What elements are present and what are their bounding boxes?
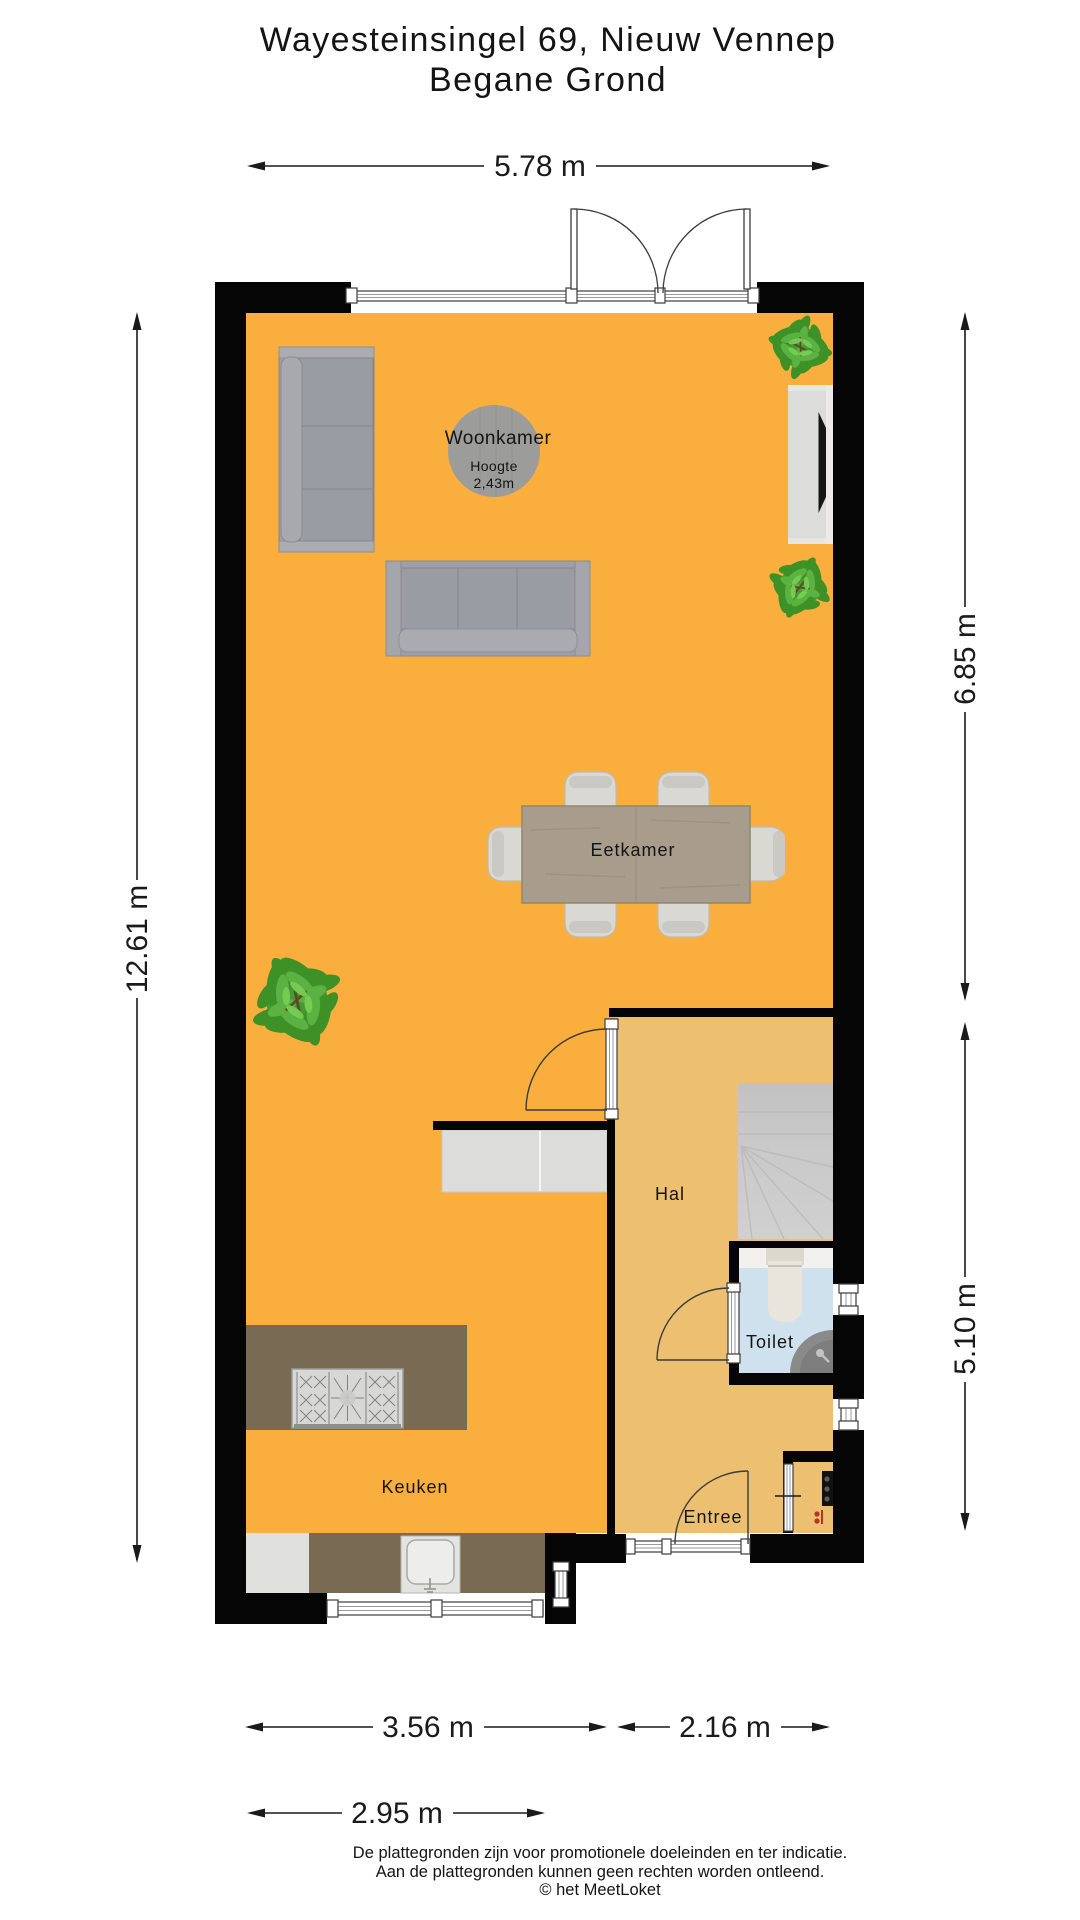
svg-text:Toilet: Toilet xyxy=(746,1332,794,1352)
svg-text:Entree: Entree xyxy=(683,1507,742,1527)
svg-text:Wayesteinsingel 69, Nieuw Venn: Wayesteinsingel 69, Nieuw Vennep xyxy=(260,21,837,59)
svg-text:6.85 m: 6.85 m xyxy=(949,613,982,705)
svg-text:Hal: Hal xyxy=(655,1184,685,1204)
svg-text:2.16 m: 2.16 m xyxy=(679,1711,771,1744)
svg-text:Hoogte: Hoogte xyxy=(470,458,518,474)
svg-text:5.78 m: 5.78 m xyxy=(494,150,586,183)
svg-text:Keuken: Keuken xyxy=(381,1477,448,1497)
svg-text:De plattegronden zijn voor pro: De plattegronden zijn voor promotionele … xyxy=(353,1844,847,1862)
svg-text:2.95 m: 2.95 m xyxy=(351,1797,443,1830)
svg-text:2,43m: 2,43m xyxy=(474,475,515,491)
svg-text:© het MeetLoket: © het MeetLoket xyxy=(539,1881,661,1899)
svg-text:5.10 m: 5.10 m xyxy=(949,1283,982,1375)
svg-text:Begane Grond: Begane Grond xyxy=(429,61,667,99)
svg-text:Woonkamer: Woonkamer xyxy=(445,428,552,449)
svg-text:Eetkamer: Eetkamer xyxy=(590,840,675,860)
svg-text:3.56 m: 3.56 m xyxy=(382,1711,474,1744)
svg-text:12.61 m: 12.61 m xyxy=(121,885,154,993)
svg-text:Aan de plattegronden kunnen ge: Aan de plattegronden kunnen geen rechten… xyxy=(376,1863,825,1881)
